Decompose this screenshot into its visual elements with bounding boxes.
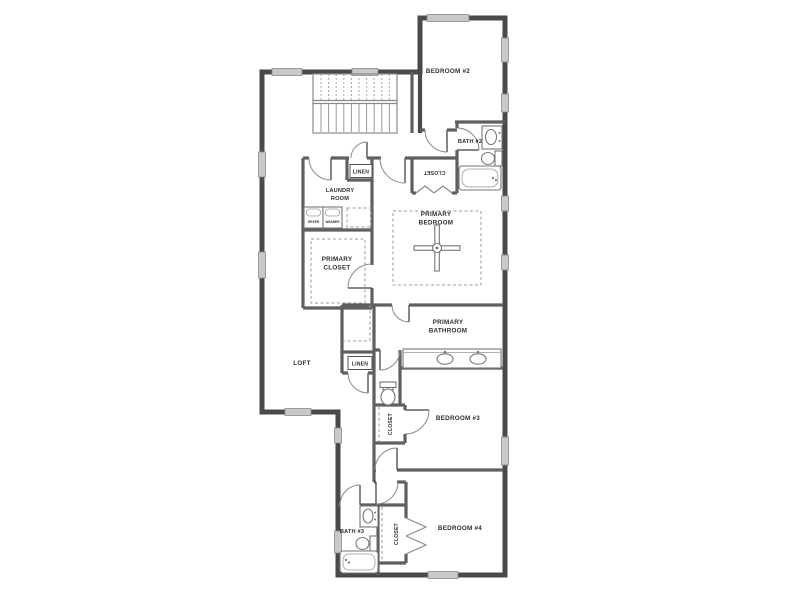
exterior-wall-outline xyxy=(262,18,505,575)
door-swing-icon xyxy=(348,373,368,393)
room-label-linen-upper: LINEN xyxy=(353,170,369,176)
bath2-fixtures xyxy=(459,126,502,190)
door-swing-icon xyxy=(375,448,397,470)
washer-icon xyxy=(323,207,342,228)
room-label-bath2: BATH #2 xyxy=(458,139,482,145)
room-label-primary-closet-1: PRIMARY xyxy=(322,256,353,263)
floor-plan-drawing: DRYER WASHER BEDROOM #2 BATH #2 CLOSET L… xyxy=(0,0,800,600)
sink-icon xyxy=(482,126,502,149)
room-label-bedroom3: BEDROOM #3 xyxy=(436,415,480,422)
laundry-counter xyxy=(347,208,371,227)
bifold-door-icon xyxy=(416,186,452,193)
window-icon xyxy=(502,38,509,62)
room-label-bath3: BATH #3 xyxy=(340,529,364,535)
room-label-laundry-2: ROOM xyxy=(331,196,349,202)
room-label-primary-bathroom-2: BATHROOM xyxy=(429,328,468,335)
laundry-appliances: DRYER WASHER xyxy=(304,207,342,228)
room-label-primary-bedroom-1: PRIMARY xyxy=(421,211,452,218)
room-label-laundry-1: LAUNDRY xyxy=(326,188,355,194)
room-label-bedroom2: BEDROOM #2 xyxy=(426,68,470,75)
door-swing-icon xyxy=(351,142,367,158)
dryer-label: DRYER xyxy=(308,220,320,224)
room-label-bedroom3-closet: CLOSET xyxy=(388,412,394,435)
room-label-bath2-closet: CLOSET xyxy=(423,169,446,175)
stairs-icon xyxy=(313,74,397,133)
window-icon xyxy=(502,255,509,270)
sink-icon xyxy=(360,506,378,527)
door-swing-icon xyxy=(380,350,400,370)
window-icon xyxy=(428,572,458,579)
ceiling-fan-icon xyxy=(414,225,460,271)
bathtub-icon xyxy=(459,166,501,190)
vanity-double-sink-icon xyxy=(403,349,501,368)
washer-label: WASHER xyxy=(326,220,341,224)
room-label-primary-bathroom-1: PRIMARY xyxy=(433,319,464,326)
room-label-loft: LOFT xyxy=(293,360,310,367)
window-icon xyxy=(502,196,509,211)
window-icon xyxy=(259,152,266,177)
bathtub-icon xyxy=(340,551,378,573)
window-icon xyxy=(272,69,302,76)
room-label-bedroom4-closet: CLOSET xyxy=(394,522,400,545)
toilet-icon xyxy=(482,151,503,166)
floor-plan-canvas: DRYER WASHER BEDROOM #2 BATH #2 CLOSET L… xyxy=(0,0,800,600)
window-icon xyxy=(285,409,311,416)
window-icon xyxy=(502,437,509,465)
door-swing-icon xyxy=(392,305,409,322)
door-swing-icon xyxy=(405,410,429,434)
water-closet-toilet xyxy=(380,382,396,405)
door-swing-icon xyxy=(425,130,447,152)
toilet-icon xyxy=(380,382,396,405)
door-swing-icon xyxy=(309,158,331,180)
bifold-door-icon xyxy=(406,518,426,554)
stair-treads-lower xyxy=(321,104,389,132)
window-icon xyxy=(427,15,469,22)
door-swing-icon xyxy=(340,485,360,505)
toilet-icon xyxy=(356,536,377,551)
door-swing-icon xyxy=(348,264,372,288)
stair-treads-upper xyxy=(321,74,389,100)
bath3-fixtures xyxy=(340,506,378,573)
door-swing-icon xyxy=(376,482,398,504)
room-label-bedroom4: BEDROOM #4 xyxy=(438,525,482,532)
room-label-linen-lower: LINEN xyxy=(352,362,368,368)
windows xyxy=(259,15,509,579)
window-icon xyxy=(502,94,509,112)
window-icon xyxy=(259,252,266,278)
interior-walls xyxy=(303,72,505,575)
dryer-icon xyxy=(304,207,323,228)
door-swing-icon xyxy=(380,158,405,183)
window-icon xyxy=(335,428,342,443)
room-label-primary-closet-2: CLOSET xyxy=(323,265,350,272)
room-label-primary-bedroom-2: BEDROOM xyxy=(419,220,454,227)
